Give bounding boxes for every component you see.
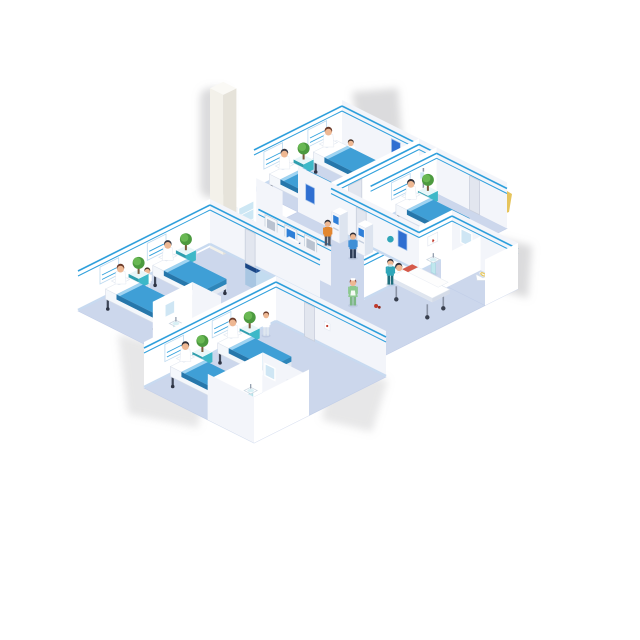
self-service-kiosk	[332, 208, 348, 244]
apron	[350, 291, 355, 296]
hospital-ward-isometric	[0, 0, 640, 640]
door	[470, 176, 480, 215]
red-cross-icon	[326, 325, 328, 327]
self-service-kiosk	[357, 220, 373, 256]
dropped-red-item	[378, 306, 381, 309]
door	[245, 229, 255, 268]
face-mask	[388, 264, 393, 266]
nurse-cap	[351, 278, 356, 280]
illustration-canvas	[0, 0, 640, 640]
dropped-red-item	[374, 304, 378, 308]
door	[305, 302, 315, 341]
